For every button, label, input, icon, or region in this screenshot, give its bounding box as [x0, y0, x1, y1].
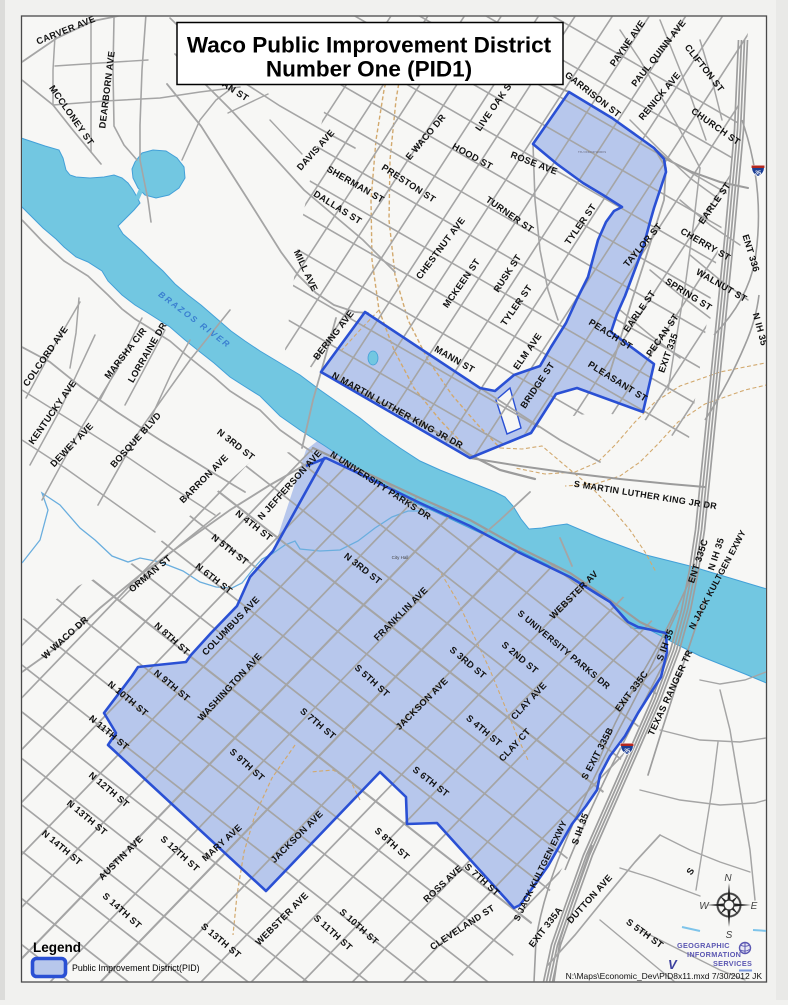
- svg-text:E: E: [751, 901, 758, 912]
- svg-text:SERVICES: SERVICES: [713, 959, 752, 968]
- svg-text:N:\Maps\Economic_Dev\PID8x11.m: N:\Maps\Economic_Dev\PID8x11.mxd 7/30/20…: [566, 971, 763, 981]
- svg-text:TXU ONCOR WORKS: TXU ONCOR WORKS: [578, 150, 606, 154]
- svg-text:INFORMATION: INFORMATION: [687, 950, 741, 959]
- svg-text:Public Improvement District(PI: Public Improvement District(PID): [72, 963, 200, 973]
- svg-text:V: V: [668, 957, 678, 972]
- svg-text:GEOGRAPHIC: GEOGRAPHIC: [677, 941, 730, 950]
- svg-text:Legend: Legend: [33, 940, 81, 955]
- svg-text:35: 35: [624, 749, 630, 755]
- svg-text:N: N: [724, 873, 732, 884]
- svg-text:Waco Public Improvement Distri: Waco Public Improvement District: [187, 33, 552, 58]
- svg-text:W: W: [699, 901, 710, 912]
- svg-text:35: 35: [755, 171, 761, 177]
- svg-text:S: S: [726, 930, 733, 941]
- svg-text:City Hall: City Hall: [392, 555, 409, 560]
- svg-text:Number One (PID1): Number One (PID1): [266, 57, 472, 82]
